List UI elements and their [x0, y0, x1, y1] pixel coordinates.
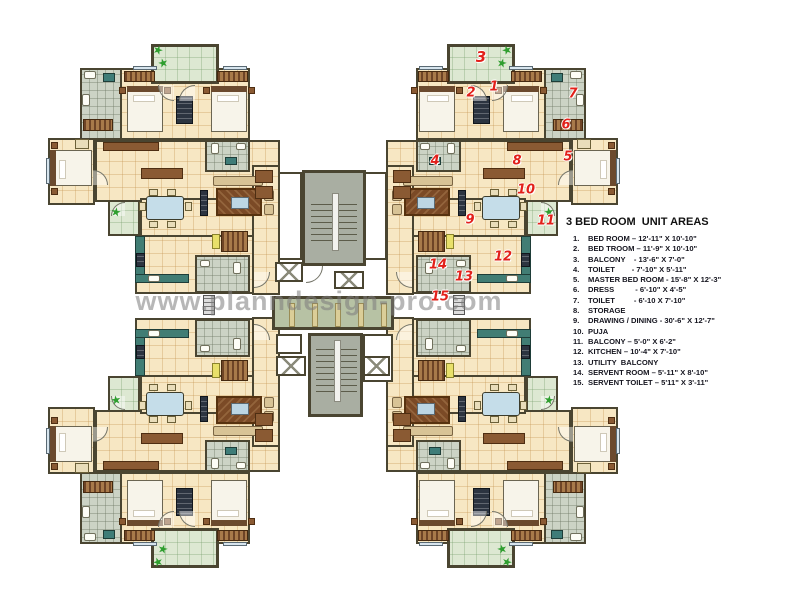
legend-item-number: 3.: [566, 255, 588, 265]
door-mark: [212, 234, 220, 249]
chair: [75, 139, 89, 149]
dining-chair: [508, 189, 517, 196]
window: [223, 66, 247, 70]
window: [133, 66, 157, 70]
dining-table: [482, 392, 520, 416]
washbasin: [420, 143, 430, 150]
elevator: [363, 356, 390, 376]
door-arc: [306, 266, 323, 283]
bed: [419, 86, 455, 132]
legend-item: 5.MASTER BED ROOM - 15'-8" X 12'-3": [566, 275, 721, 285]
dining-chair: [167, 416, 176, 423]
legend-item-text: BED TROOM – 11'-9" X 10'-10": [588, 244, 697, 254]
bed: [503, 480, 539, 526]
chair: [577, 139, 591, 149]
room-number-marker: 8: [512, 154, 521, 169]
window: [509, 542, 533, 546]
washbasin: [236, 462, 246, 469]
dining-chair: [490, 416, 499, 423]
legend-item: 4.TOILET - 7'-10" X 5'-11": [566, 265, 721, 275]
window: [223, 542, 247, 546]
dining-chair: [139, 202, 146, 211]
room-number-marker: 3: [476, 48, 486, 66]
bedside-table: [119, 518, 126, 525]
wardrobe: [217, 530, 248, 541]
legend-item: 15.SERVENT TOILET – 5'11" X 3'-11": [566, 378, 721, 388]
stove: [136, 253, 145, 267]
column-mark: [335, 303, 341, 327]
legend-item-text: TOILET - 7'-10" X 5'-11": [588, 265, 686, 275]
legend-item: 11.BALCONY – 5'-0" X 6'-2": [566, 337, 721, 347]
room-number-marker: 12: [494, 250, 512, 265]
wardrobe: [393, 413, 411, 426]
kitchen-counter: [135, 329, 189, 338]
armchair: [392, 204, 402, 215]
bedside-table: [51, 142, 58, 149]
washbasin: [570, 533, 582, 541]
dining-table: [146, 392, 184, 416]
legend-item-number: 13.: [566, 358, 588, 368]
legend-item-number: 7.: [566, 296, 588, 306]
window: [46, 158, 50, 184]
bedside-table: [608, 142, 615, 149]
dining-chair: [149, 189, 158, 196]
legend-item-text: SERVENT ROOM – 5'-11" X 8'-10": [588, 368, 708, 378]
bed: [211, 86, 247, 132]
bedside-table: [119, 87, 126, 94]
kitchen-counter: [135, 274, 189, 283]
bedside-table: [608, 188, 615, 195]
master-bed: [574, 426, 616, 462]
bedside-table: [456, 87, 463, 94]
tv-unit: [200, 190, 208, 216]
wardrobe: [418, 71, 449, 82]
washbasin: [236, 143, 246, 150]
washbasin: [570, 71, 582, 79]
shaft-room: [363, 172, 387, 260]
bedside-table: [608, 417, 615, 424]
dining-chair: [474, 202, 481, 211]
shower-mat: [551, 530, 563, 539]
lift-lobby-corridor: [272, 296, 394, 330]
wardrobe: [255, 186, 273, 199]
console-table: [483, 433, 525, 444]
stove: [521, 253, 530, 267]
dining-chair: [149, 221, 158, 228]
shaft-room: [276, 334, 302, 354]
armchair: [264, 204, 274, 215]
legend-item-number: 8.: [566, 306, 588, 316]
legend-item: 8.STORAGE: [566, 306, 721, 316]
room-number-marker: 11: [537, 214, 555, 229]
kitchen-sink: [506, 330, 518, 337]
dining-chair: [520, 401, 527, 410]
room-number-marker: 13: [455, 270, 473, 285]
dining-chair: [508, 384, 517, 391]
bedside-table: [456, 518, 463, 525]
room-number-marker: 2: [466, 86, 475, 101]
legend-item: 13.UTILITY BALCONY: [566, 358, 721, 368]
dining-chair: [490, 221, 499, 228]
tv-unit: [458, 396, 466, 422]
room-number-marker: 15: [431, 290, 449, 305]
dining-chair: [167, 384, 176, 391]
legend-item-number: 9.: [566, 316, 588, 326]
unit-top-left: [45, 40, 280, 305]
stove: [136, 345, 145, 359]
bedside-table: [51, 417, 58, 424]
unit-areas-legend: 3 BED ROOM UNIT AREAS 1.BED ROOM – 12'-1…: [566, 216, 721, 388]
legend-item: 1.BED ROOM – 12'-11" X 10'-10": [566, 234, 721, 244]
legend-item: 14.SERVENT ROOM – 5'-11" X 8'-10": [566, 368, 721, 378]
shaft-room: [278, 172, 302, 260]
servant-bed: [221, 231, 248, 252]
sideboard: [103, 142, 159, 151]
legend-item-text: BALCONY – 5'-0" X 6'-2": [588, 337, 676, 347]
shower-mat: [225, 447, 237, 455]
wardrobe: [393, 170, 411, 183]
dining-chair: [167, 189, 176, 196]
legend-item-text: TOILET - 6'-10 X 7'-10": [588, 296, 685, 306]
tv-unit: [200, 396, 208, 422]
master-bed: [574, 150, 616, 186]
shower-mat: [103, 73, 115, 82]
door-mark: [446, 363, 454, 378]
legend-item-number: 5.: [566, 275, 588, 285]
legend-item-text: DRESS - 6'-10" X 4'-5": [588, 285, 686, 295]
legend-item-text: DRAWING / DINING - 30'-6" X 12'-7": [588, 316, 715, 326]
toilet-wc: [447, 458, 455, 469]
servant-bed: [221, 360, 248, 381]
chair: [577, 463, 591, 473]
wardrobe: [255, 170, 273, 183]
room-number-marker: 7: [568, 87, 577, 102]
wardrobe: [553, 481, 583, 493]
master-bed: [50, 150, 92, 186]
master-bed: [50, 426, 92, 462]
legend-item-list: 1.BED ROOM – 12'-11" X 10'-10"2.BED TROO…: [566, 234, 721, 388]
bed: [127, 86, 163, 132]
washbasin: [84, 71, 96, 79]
kitchen-sink: [148, 330, 160, 337]
legend-item-text: UTILITY BALCONY: [588, 358, 658, 368]
legend-item-text: SERVENT TOILET – 5'11" X 3'-11": [588, 378, 708, 388]
bedside-table: [203, 518, 210, 525]
legend-item-number: 12.: [566, 347, 588, 357]
dining-table: [482, 196, 520, 220]
floor-plan-canvas: www.planndesign-pro.com 3 BED ROOM UNIT …: [0, 0, 800, 612]
console-table: [483, 168, 525, 179]
window: [133, 542, 157, 546]
washbasin: [200, 345, 210, 352]
washbasin: [456, 345, 466, 352]
kitchen-counter: [477, 274, 531, 283]
column-mark: [358, 303, 364, 327]
legend-item-number: 6.: [566, 285, 588, 295]
toilet-wc: [233, 338, 241, 350]
room-number-marker: 4: [430, 154, 439, 169]
bedside-table: [51, 463, 58, 470]
dining-chair: [474, 401, 481, 410]
bed: [419, 480, 455, 526]
toilet-wc: [211, 143, 219, 154]
bedside-table: [51, 188, 58, 195]
legend-item: 6.DRESS - 6'-10" X 4'-5": [566, 285, 721, 295]
bedside-table: [540, 518, 547, 525]
room-number-marker: 6: [561, 118, 570, 133]
shower-mat: [225, 157, 237, 165]
wardrobe: [83, 119, 113, 131]
window: [419, 66, 443, 70]
chair: [75, 463, 89, 473]
legend-item-number: 14.: [566, 368, 588, 378]
sideboard: [103, 461, 159, 470]
room-number-marker: 9: [465, 213, 474, 228]
legend-item-number: 11.: [566, 337, 588, 347]
washbasin: [84, 533, 96, 541]
column-mark: [289, 303, 295, 327]
service-duct: [453, 295, 465, 315]
shower-mat: [551, 73, 563, 82]
stair-rail: [332, 193, 339, 251]
room-number-marker: 14: [429, 258, 447, 273]
legend-item-number: 15.: [566, 378, 588, 388]
shower-mat: [429, 447, 441, 455]
bedside-table: [540, 87, 547, 94]
column-mark: [312, 303, 318, 327]
wardrobe: [124, 71, 155, 82]
unit-bottom-left: [45, 307, 280, 572]
elevator: [276, 356, 306, 376]
window: [616, 158, 620, 184]
legend-item-number: 4.: [566, 265, 588, 275]
wardrobe: [511, 71, 542, 82]
bedside-table: [608, 463, 615, 470]
dining-table: [146, 196, 184, 220]
toilet-wc: [82, 94, 90, 106]
elevator: [275, 262, 303, 282]
dining-chair: [520, 202, 527, 211]
legend-item-number: 2.: [566, 244, 588, 254]
legend-item-text: PUJA: [588, 327, 608, 337]
dining-chair: [185, 202, 192, 211]
legend-item-number: 10.: [566, 327, 588, 337]
sideboard: [507, 142, 563, 151]
bedside-table: [203, 87, 210, 94]
wardrobe: [418, 530, 449, 541]
dining-chair: [167, 221, 176, 228]
washbasin: [200, 260, 210, 267]
bed: [211, 480, 247, 526]
servant-bed: [418, 360, 445, 381]
bedside-table: [248, 87, 255, 94]
toilet-wc: [447, 143, 455, 154]
dining-chair: [508, 416, 517, 423]
window: [509, 66, 533, 70]
bedside-table: [411, 518, 418, 525]
dining-chair: [139, 401, 146, 410]
dining-chair: [490, 189, 499, 196]
plant-star-icon: ★: [110, 393, 123, 407]
room-number-marker: 10: [517, 183, 535, 198]
legend-item: 10.PUJA: [566, 327, 721, 337]
room-number-marker: 1: [489, 80, 498, 95]
legend-item: 3.BALCONY - 13'-6" X 7'-0": [566, 255, 721, 265]
wardrobe: [217, 71, 248, 82]
legend-title: 3 BED ROOM UNIT AREAS: [566, 216, 721, 228]
staircase-bottom: [308, 333, 363, 417]
washbasin: [420, 462, 430, 469]
wardrobe: [393, 186, 411, 199]
toilet-wc: [211, 458, 219, 469]
service-duct: [203, 295, 215, 315]
window: [616, 428, 620, 454]
legend-item-text: BED ROOM – 12'-11" X 10'-10": [588, 234, 697, 244]
legend-item: 2.BED TROOM – 11'-9" X 10'-10": [566, 244, 721, 254]
toilet-wc: [576, 506, 584, 518]
bed: [503, 86, 539, 132]
bedside-table: [411, 87, 418, 94]
stair-rail: [334, 340, 341, 402]
shower-mat: [103, 530, 115, 539]
wardrobe: [511, 530, 542, 541]
kitchen-sink: [148, 275, 160, 282]
dining-chair: [149, 384, 158, 391]
toilet-wc: [82, 506, 90, 518]
room-number-marker: 5: [563, 150, 572, 165]
plant-star-icon: ★: [110, 205, 123, 219]
dining-chair: [490, 384, 499, 391]
legend-item-text: BALCONY - 13'-6" X 7'-0": [588, 255, 685, 265]
kitchen-counter: [477, 329, 531, 338]
armchair: [392, 397, 402, 408]
console-table: [141, 433, 183, 444]
door-mark: [212, 363, 220, 378]
dining-chair: [508, 221, 517, 228]
bed: [127, 480, 163, 526]
wardrobe: [393, 429, 411, 442]
stove: [521, 345, 530, 359]
wardrobe: [124, 530, 155, 541]
legend-item: 7.TOILET - 6'-10 X 7'-10": [566, 296, 721, 306]
plant-star-icon: ★: [543, 393, 556, 407]
toilet-wc: [233, 262, 241, 274]
servant-bed: [418, 231, 445, 252]
dining-chair: [185, 401, 192, 410]
legend-item: 12.KITCHEN – 10'-4" X 7'-10": [566, 347, 721, 357]
wardrobe: [255, 413, 273, 426]
kitchen-sink: [506, 275, 518, 282]
wardrobe: [83, 481, 113, 493]
elevator: [334, 271, 364, 289]
dining-chair: [149, 416, 158, 423]
legend-item-text: MASTER BED ROOM - 15'-8" X 12'-3": [588, 275, 721, 285]
washbasin: [456, 260, 466, 267]
window: [46, 428, 50, 454]
legend-item-number: 1.: [566, 234, 588, 244]
toilet-wc: [425, 338, 433, 350]
window: [419, 542, 443, 546]
sideboard: [507, 461, 563, 470]
staircase-top: [302, 170, 366, 266]
door-mark: [446, 234, 454, 249]
column-mark: [381, 303, 387, 327]
legend-item-text: STORAGE: [588, 306, 625, 316]
console-table: [141, 168, 183, 179]
wardrobe: [255, 429, 273, 442]
armchair: [264, 397, 274, 408]
legend-item-text: KITCHEN – 10'-4" X 7'-10": [588, 347, 681, 357]
legend-item: 9.DRAWING / DINING - 30'-6" X 12'-7": [566, 316, 721, 326]
bedside-table: [248, 518, 255, 525]
